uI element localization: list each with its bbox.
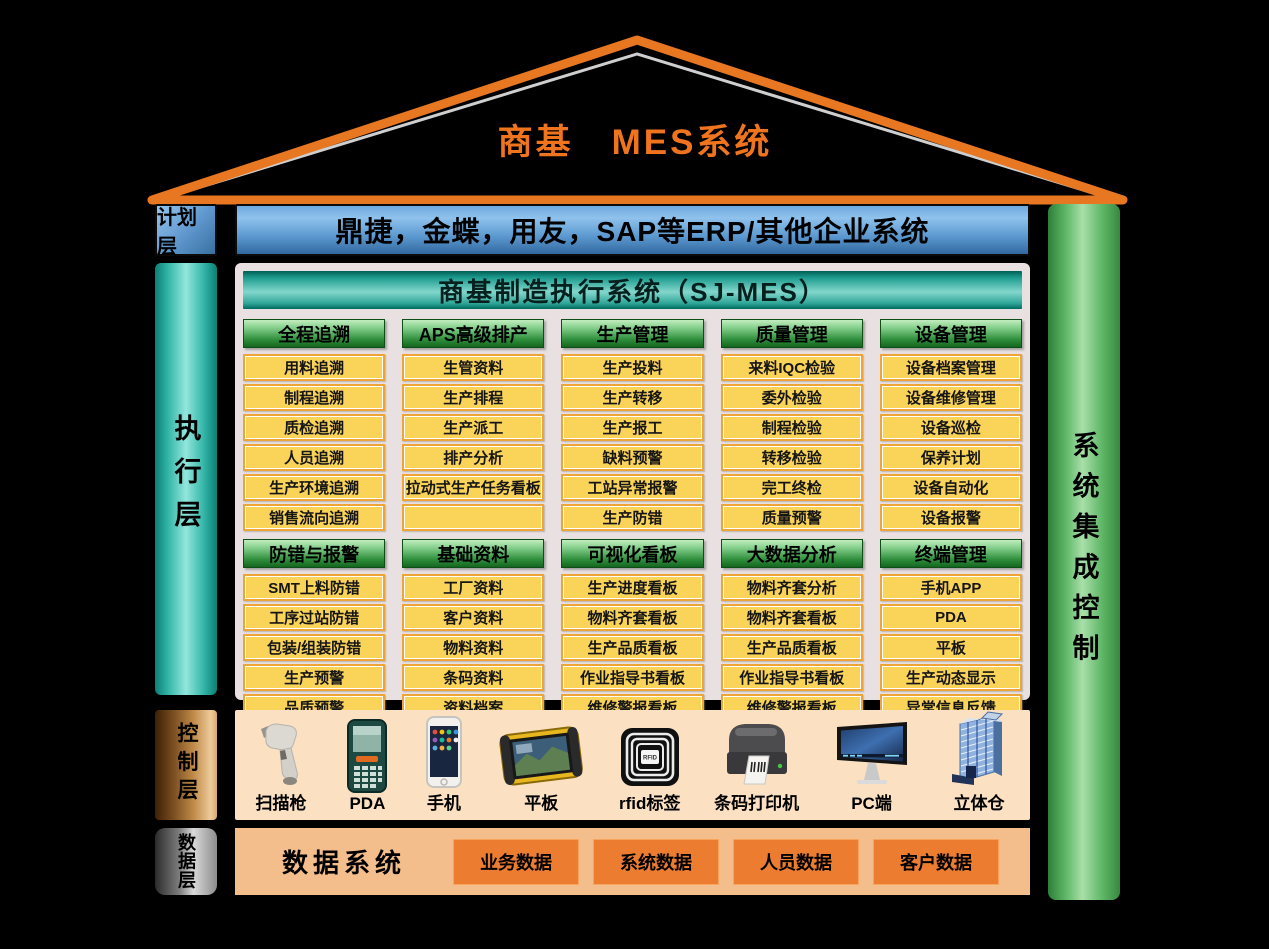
data-category-badge: 人员数据 [733,839,859,885]
module-box: 委外检验 [721,384,863,411]
data-layer-bar: 数据层 [155,828,217,895]
module-box: 生产排程 [402,384,544,411]
execution-layer-label: 执行层 [167,414,206,544]
group-header: 全程追溯 [243,319,385,348]
group-items: 生产投料生产转移生产报工缺料预警工站异常报警生产防错 [561,354,703,531]
group-header: 终端管理 [880,539,1022,568]
group-items: 用料追溯制程追溯质检追溯人员追溯生产环境追溯销售流向追溯 [243,354,385,531]
module-box: 质量预警 [721,504,863,531]
module-box: 生产投料 [561,354,703,381]
pc-monitor-icon [833,716,911,788]
module-box: 作业指导书看板 [561,664,703,691]
module-group: 设备管理设备档案管理设备维修管理设备巡检保养计划设备自动化设备报警 [880,319,1022,531]
module-box: 拉动式生产任务看板 [402,474,544,501]
module-box: PDA [880,604,1022,631]
rugged-tablet-icon [497,716,585,788]
mes-panel: 商基制造执行系统（SJ-MES） 全程追溯用料追溯制程追溯质检追溯人员追溯生产环… [235,263,1030,700]
module-box: 完工终检 [721,474,863,501]
module-box: 物料资料 [402,634,544,661]
page-title: 商基 MES系统 [400,114,870,165]
module-box: 物料齐套看板 [561,604,703,631]
module-box: 人员追溯 [243,444,385,471]
control-layer-bar: 控制层 [155,710,217,820]
module-box: 手机APP [880,574,1022,601]
module-box: 生产动态显示 [880,664,1022,691]
system-integration-label: 系统集成控制 [1065,431,1104,674]
data-buttons: 业务数据系统数据人员数据客户数据 [453,839,999,885]
device-label: 扫描枪 [256,789,307,814]
group-items: 设备档案管理设备维修管理设备巡检保养计划设备自动化设备报警 [880,354,1022,531]
group-header: 大数据分析 [721,539,863,568]
module-box: 生产转移 [561,384,703,411]
module-box: 保养计划 [880,444,1022,471]
group-items: 来料IQC检验委外检验制程检验转移检验完工终检质量预警 [721,354,863,531]
module-box: 物料齐套分析 [721,574,863,601]
group-header: APS高级排产 [402,319,544,348]
module-box: 条码资料 [402,664,544,691]
device-label: rfid标签 [619,789,680,814]
rfid-tag-icon: RFID [619,716,681,788]
module-box: 设备巡检 [880,414,1022,441]
module-box: 排产分析 [402,444,544,471]
mes-module-grid: 全程追溯用料追溯制程追溯质检追溯人员追溯生产环境追溯销售流向追溯APS高级排产生… [243,319,1022,751]
device-cell: 扫描枪 [251,716,311,814]
device-cell: PC端 [833,716,911,814]
scanner-gun-icon [251,716,311,788]
data-category-badge: 客户数据 [873,839,999,885]
module-box: 生产预警 [243,664,385,691]
device-cell: 手机 [424,716,464,814]
module-box: 制程检验 [721,414,863,441]
device-cell: 平板 [497,716,585,814]
device-cell: PDA [344,721,390,814]
module-box: 生产报工 [561,414,703,441]
module-group: 生产管理生产投料生产转移生产报工缺料预警工站异常报警生产防错 [561,319,703,531]
module-box: 设备报警 [880,504,1022,531]
barcode-printer-icon [719,716,795,788]
data-layer-label: 数据层 [173,833,199,890]
smartphone-icon [424,716,464,788]
data-systems-title: 数据系统 [235,843,453,880]
module-box: 生管资料 [402,354,544,381]
module-box: 物料齐套看板 [721,604,863,631]
module-box: 生产品质看板 [561,634,703,661]
module-box: 设备自动化 [880,474,1022,501]
control-layer-label: 控制层 [171,722,201,807]
device-cell: RFIDrfid标签 [619,716,681,814]
data-category-badge: 系统数据 [593,839,719,885]
group-header: 设备管理 [880,319,1022,348]
device-label: 条码打印机 [714,789,799,814]
group-header: 质量管理 [721,319,863,348]
execution-layer-bar: 执行层 [155,263,217,695]
erp-systems-bar: 鼎捷，金蝶，用友，SAP等ERP/其他企业系统 [235,204,1030,256]
module-box: 质检追溯 [243,414,385,441]
module-box: 工站异常报警 [561,474,703,501]
module-box: 生产品质看板 [721,634,863,661]
group-header: 生产管理 [561,319,703,348]
system-integration-bar: 系统集成控制 [1048,204,1120,900]
module-group: 全程追溯用料追溯制程追溯质检追溯人员追溯生产环境追溯销售流向追溯 [243,319,385,531]
group-header: 基础资料 [402,539,544,568]
module-box: 用料追溯 [243,354,385,381]
module-group: 质量管理来料IQC检验委外检验制程检验转移检验完工终检质量预警 [721,319,863,531]
device-label: PC端 [851,789,892,814]
mes-architecture-diagram: 商基 MES系统 计划层 鼎捷，金蝶，用友，SAP等ERP/其他企业系统 执行层… [0,0,1269,949]
module-box: 生产进度看板 [561,574,703,601]
module-box: SMT上料防错 [243,574,385,601]
warehouse-icon [944,716,1014,788]
device-cell: 立体仓 [944,716,1014,814]
mes-row: 全程追溯用料追溯制程追溯质检追溯人员追溯生产环境追溯销售流向追溯APS高级排产生… [243,319,1022,531]
module-box: 客户资料 [402,604,544,631]
module-box: 缺料预警 [561,444,703,471]
module-box: 设备档案管理 [880,354,1022,381]
module-box: 工序过站防错 [243,604,385,631]
module-box: 工厂资料 [402,574,544,601]
plan-layer-label: 计划层 [155,204,217,256]
svg-text:RFID: RFID [643,756,658,762]
data-category-badge: 业务数据 [453,839,579,885]
module-box: 设备维修管理 [880,384,1022,411]
mes-panel-header: 商基制造执行系统（SJ-MES） [243,271,1022,309]
module-box: 生产防错 [561,504,703,531]
device-label: 手机 [427,789,461,814]
module-box: 生产派工 [402,414,544,441]
module-box: 制程追溯 [243,384,385,411]
module-box: 生产环境追溯 [243,474,385,501]
module-box: 包装/组装防错 [243,634,385,661]
module-box: 来料IQC检验 [721,354,863,381]
group-header: 防错与报警 [243,539,385,568]
module-box: 转移检验 [721,444,863,471]
device-label: PDA [349,794,385,814]
group-header: 可视化看板 [561,539,703,568]
module-group: APS高级排产生管资料生产排程生产派工排产分析拉动式生产任务看板 [402,319,544,531]
devices-bar: 扫描枪PDA手机平板RFIDrfid标签条码打印机PC端立体仓 [235,710,1030,820]
module-box: 作业指导书看板 [721,664,863,691]
data-systems-bar: 数据系统 业务数据系统数据人员数据客户数据 [235,828,1030,895]
module-box [402,504,544,531]
module-box: 平板 [880,634,1022,661]
device-label: 立体仓 [953,789,1004,814]
device-label: 平板 [524,789,558,814]
module-box: 销售流向追溯 [243,504,385,531]
device-cell: 条码打印机 [714,716,799,814]
group-items: 生管资料生产排程生产派工排产分析拉动式生产任务看板 [402,354,544,531]
pda-icon [344,721,390,793]
